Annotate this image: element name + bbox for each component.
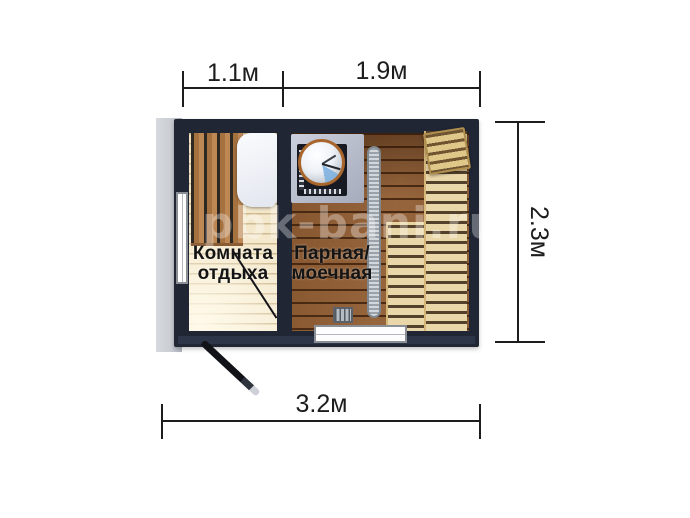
dimension-bottom-line — [162, 420, 481, 422]
white-table — [237, 133, 277, 207]
entrance-door-leaf — [200, 340, 260, 397]
dimension-label-bottom: 3.2м — [162, 390, 481, 419]
dimension-right-tick-bottom — [495, 341, 545, 343]
left-wall-window — [176, 192, 188, 284]
stove-water-tank — [298, 139, 345, 186]
dimension-label-top-right: 1.9м — [283, 57, 480, 86]
dimension-label-right: 2.3м — [526, 203, 552, 261]
floor-plan-canvas: 1.1м 1.9м 2.3м 3.2м pbk-bani.ru Комната … — [0, 0, 690, 518]
dimension-right-tick-top — [495, 121, 545, 123]
watermark: pbk-bani.ru — [202, 198, 501, 249]
floor-drain-grate — [333, 307, 353, 323]
rest-room-label-line2: отдыха — [189, 264, 277, 284]
steam-room-label-line2: моечная — [287, 264, 377, 284]
steam-room-label-line1: Парная/ — [287, 244, 377, 264]
dimension-label-top-left: 1.1м — [183, 59, 283, 88]
steam-room-label: Парная/ моечная — [287, 244, 377, 284]
dimension-right-line — [517, 122, 519, 342]
bottom-wall-window — [314, 325, 407, 343]
bench-headrest — [423, 127, 471, 175]
